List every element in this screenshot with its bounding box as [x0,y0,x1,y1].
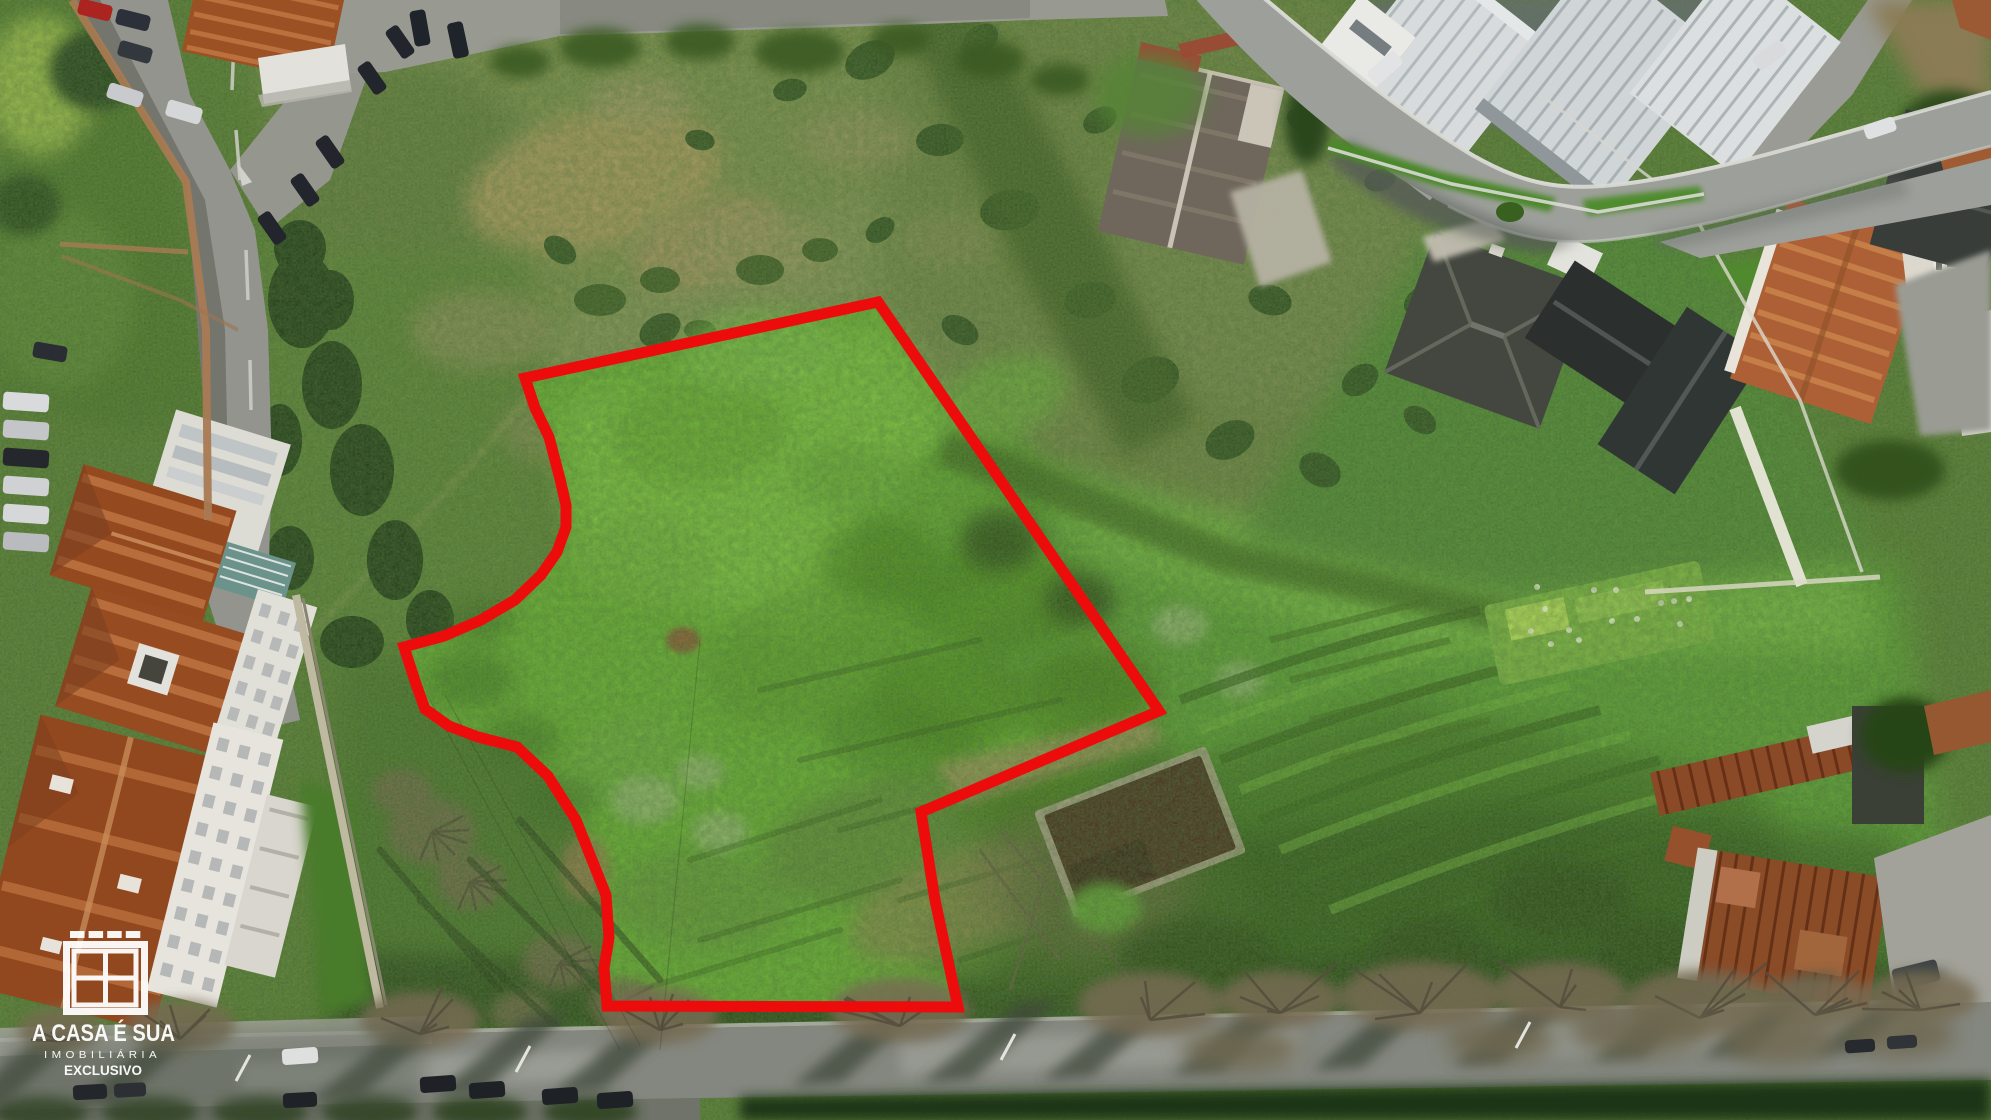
svg-text:A CASA É SUA: A CASA É SUA [32,1019,175,1047]
svg-text:IMOBILIÁRIA: IMOBILIÁRIA [44,1048,161,1061]
svg-text:EXCLUSIVO: EXCLUSIVO [64,1063,142,1078]
